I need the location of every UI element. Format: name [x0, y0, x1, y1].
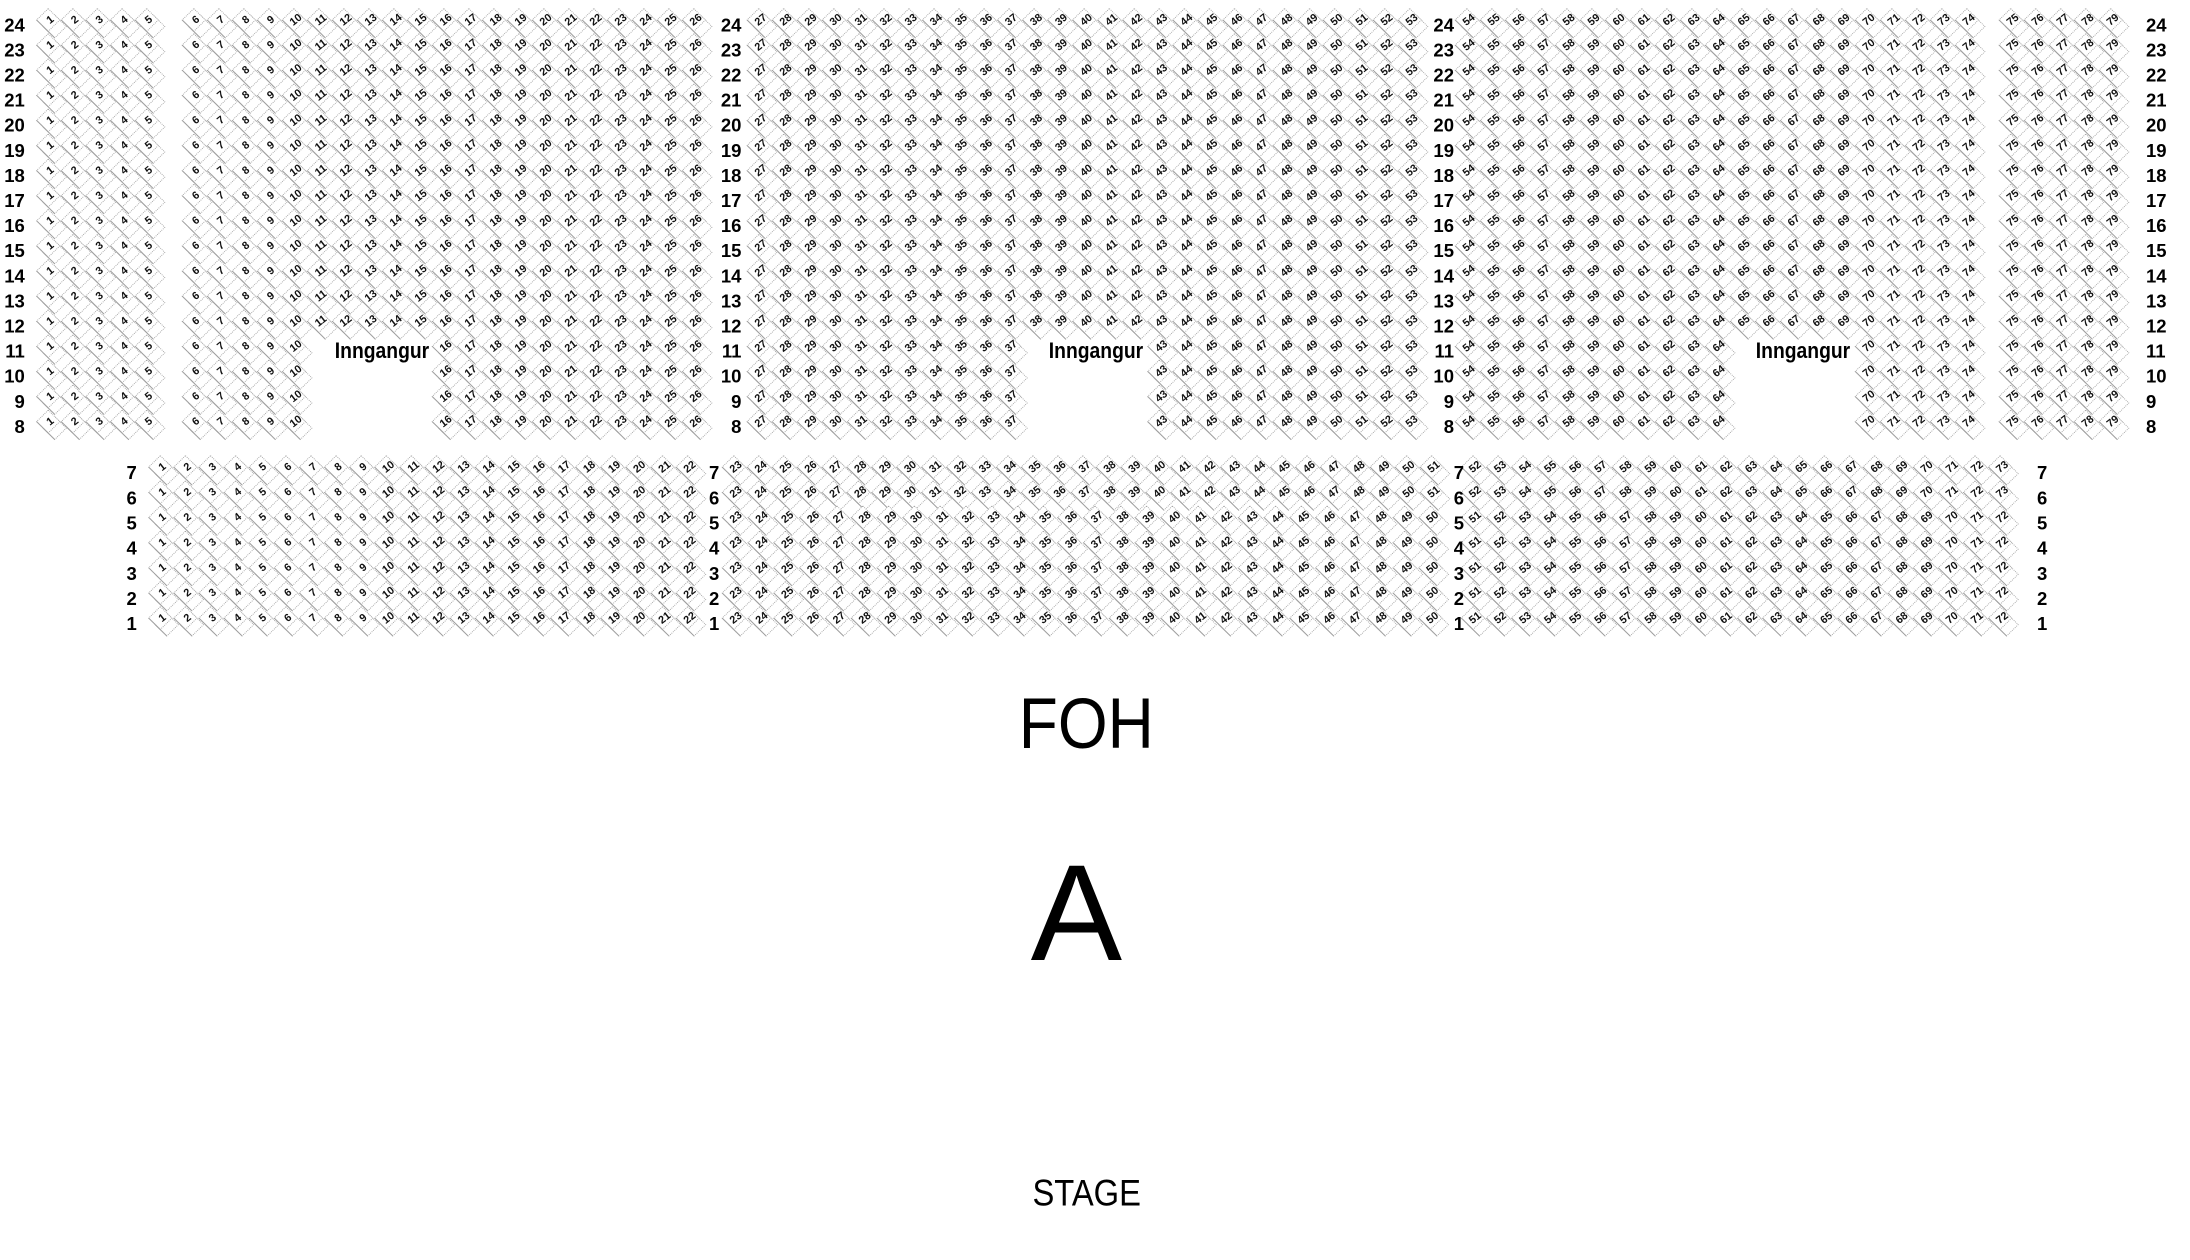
svg-text:1: 1	[709, 613, 719, 634]
svg-text:14: 14	[721, 265, 742, 286]
svg-text:22: 22	[721, 65, 742, 86]
svg-text:24: 24	[1433, 14, 1454, 35]
svg-text:7: 7	[2037, 462, 2047, 483]
svg-text:STAGE: STAGE	[1032, 1173, 1141, 1214]
svg-text:17: 17	[721, 190, 742, 211]
svg-text:22: 22	[4, 65, 25, 86]
svg-text:1: 1	[2037, 613, 2047, 634]
svg-text:13: 13	[2146, 290, 2167, 311]
svg-text:7: 7	[127, 462, 137, 483]
svg-text:19: 19	[721, 140, 742, 161]
svg-text:4: 4	[127, 538, 138, 559]
svg-text:3: 3	[1454, 563, 1464, 584]
svg-text:9: 9	[731, 391, 741, 412]
svg-text:8: 8	[1444, 416, 1454, 437]
svg-text:21: 21	[4, 90, 25, 111]
svg-text:14: 14	[1433, 265, 1454, 286]
svg-text:17: 17	[4, 190, 25, 211]
svg-text:8: 8	[731, 416, 741, 437]
svg-text:3: 3	[127, 563, 137, 584]
svg-text:FOH: FOH	[1019, 685, 1154, 764]
svg-text:18: 18	[721, 165, 742, 186]
svg-text:5: 5	[1454, 512, 1464, 533]
svg-text:1: 1	[127, 613, 137, 634]
svg-text:6: 6	[2037, 487, 2047, 508]
svg-text:10: 10	[721, 366, 742, 387]
svg-text:6: 6	[709, 487, 719, 508]
svg-text:10: 10	[1433, 366, 1454, 387]
svg-text:12: 12	[2146, 316, 2167, 337]
svg-text:18: 18	[2146, 165, 2167, 186]
svg-text:20: 20	[2146, 115, 2167, 136]
svg-text:16: 16	[721, 215, 742, 236]
svg-text:9: 9	[2146, 391, 2156, 412]
svg-text:1: 1	[1454, 613, 1464, 634]
svg-text:2: 2	[2037, 588, 2047, 609]
svg-text:Inngangur: Inngangur	[335, 338, 430, 363]
svg-text:6: 6	[1454, 487, 1464, 508]
svg-text:23: 23	[4, 39, 25, 60]
svg-text:16: 16	[2146, 215, 2167, 236]
svg-text:9: 9	[15, 391, 25, 412]
svg-text:12: 12	[721, 316, 742, 337]
svg-text:16: 16	[4, 215, 25, 236]
svg-text:24: 24	[4, 14, 25, 35]
svg-text:2: 2	[709, 588, 719, 609]
svg-text:21: 21	[2146, 90, 2167, 111]
svg-text:13: 13	[4, 290, 25, 311]
svg-text:8: 8	[15, 416, 25, 437]
svg-text:11: 11	[2146, 341, 2166, 362]
svg-text:23: 23	[721, 39, 742, 60]
svg-text:15: 15	[2146, 240, 2167, 261]
svg-text:4: 4	[709, 538, 720, 559]
svg-text:10: 10	[4, 366, 25, 387]
svg-text:5: 5	[127, 512, 137, 533]
svg-text:11: 11	[722, 341, 742, 362]
svg-text:20: 20	[1433, 115, 1454, 136]
svg-text:16: 16	[1433, 215, 1454, 236]
svg-text:15: 15	[721, 240, 742, 261]
svg-text:24: 24	[721, 14, 742, 35]
svg-text:2: 2	[1454, 588, 1464, 609]
svg-text:17: 17	[2146, 190, 2167, 211]
svg-text:14: 14	[4, 265, 25, 286]
svg-text:17: 17	[1433, 190, 1454, 211]
svg-text:Inngangur: Inngangur	[1756, 338, 1851, 363]
svg-text:A: A	[1031, 837, 1123, 990]
svg-text:13: 13	[721, 290, 742, 311]
svg-text:21: 21	[1433, 90, 1454, 111]
svg-text:11: 11	[5, 341, 25, 362]
svg-text:12: 12	[1433, 316, 1454, 337]
svg-text:19: 19	[1433, 140, 1454, 161]
svg-text:11: 11	[1434, 341, 1454, 362]
svg-text:22: 22	[1433, 65, 1454, 86]
svg-text:7: 7	[709, 462, 719, 483]
svg-text:3: 3	[2037, 563, 2047, 584]
svg-text:19: 19	[2146, 140, 2167, 161]
svg-text:15: 15	[4, 240, 25, 261]
svg-text:12: 12	[4, 316, 25, 337]
svg-text:9: 9	[1444, 391, 1454, 412]
svg-text:6: 6	[127, 487, 137, 508]
svg-text:21: 21	[721, 90, 742, 111]
svg-text:23: 23	[2146, 39, 2167, 60]
svg-text:24: 24	[2146, 14, 2167, 35]
svg-text:2: 2	[127, 588, 137, 609]
svg-text:22: 22	[2146, 65, 2167, 86]
svg-text:3: 3	[709, 563, 719, 584]
svg-text:5: 5	[2037, 512, 2047, 533]
svg-text:8: 8	[2146, 416, 2156, 437]
svg-text:7: 7	[1454, 462, 1464, 483]
svg-text:Inngangur: Inngangur	[1049, 338, 1144, 363]
svg-text:13: 13	[1433, 290, 1454, 311]
svg-text:5: 5	[709, 512, 719, 533]
svg-text:20: 20	[721, 115, 742, 136]
svg-text:19: 19	[4, 140, 25, 161]
svg-text:10: 10	[2146, 366, 2167, 387]
svg-text:4: 4	[2037, 538, 2048, 559]
svg-text:20: 20	[4, 115, 25, 136]
svg-text:18: 18	[4, 165, 25, 186]
svg-text:4: 4	[1454, 538, 1465, 559]
svg-text:18: 18	[1433, 165, 1454, 186]
svg-text:14: 14	[2146, 265, 2167, 286]
svg-text:15: 15	[1433, 240, 1454, 261]
svg-text:23: 23	[1433, 39, 1454, 60]
